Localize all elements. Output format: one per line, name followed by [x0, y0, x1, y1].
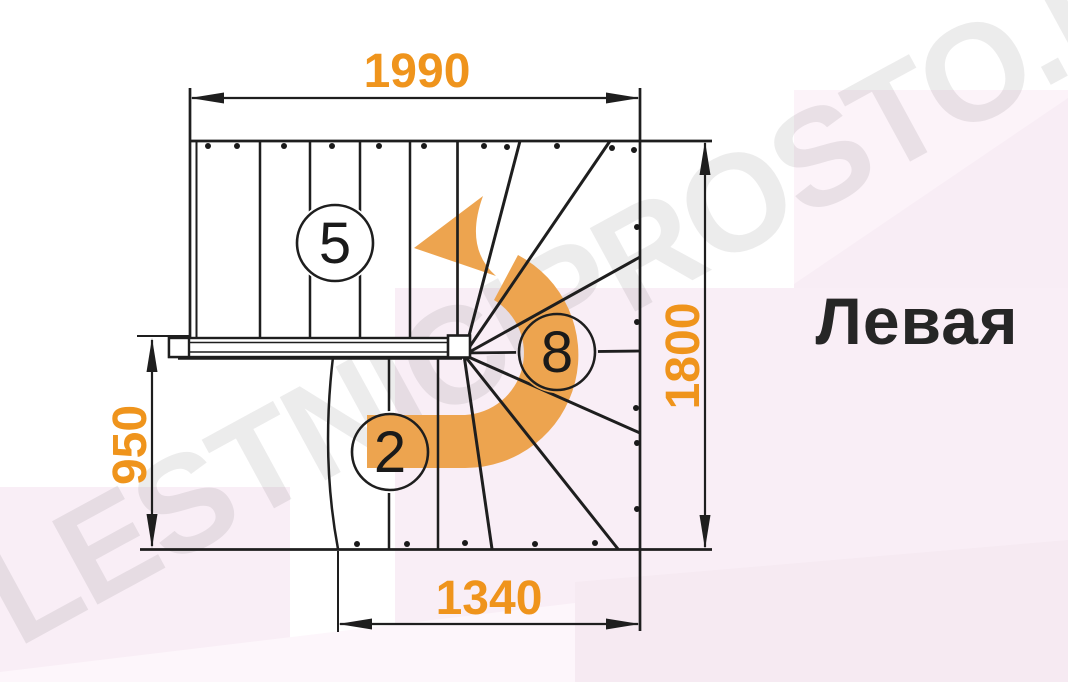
orientation-label: Левая — [816, 284, 1019, 358]
dim-right-label: 1800 — [657, 303, 710, 410]
winder-count: 8 — [541, 320, 573, 385]
stair-plan-canvas: LESTNICIPROSTO.RU — [0, 0, 1068, 682]
stair-plan-svg: LESTNICIPROSTO.RU — [0, 0, 1068, 682]
turn-arrow-head — [414, 196, 496, 276]
lower-flight-count: 2 — [374, 420, 406, 485]
dim-arrow-left-icon — [338, 619, 372, 630]
beam-right-cap — [448, 336, 470, 358]
landing-beam — [169, 336, 470, 359]
dim-arrow-left-icon — [190, 93, 224, 104]
dim-arrow-up-icon — [147, 338, 158, 372]
dim-top-label: 1990 — [364, 45, 471, 98]
beam-left-cap — [169, 338, 189, 357]
dim-arrow-right-icon — [606, 93, 640, 104]
dim-bottom-label: 1340 — [436, 572, 543, 625]
upper-flight-count: 5 — [319, 211, 351, 276]
dim-left-label: 950 — [104, 405, 157, 485]
beam-body — [169, 338, 468, 357]
